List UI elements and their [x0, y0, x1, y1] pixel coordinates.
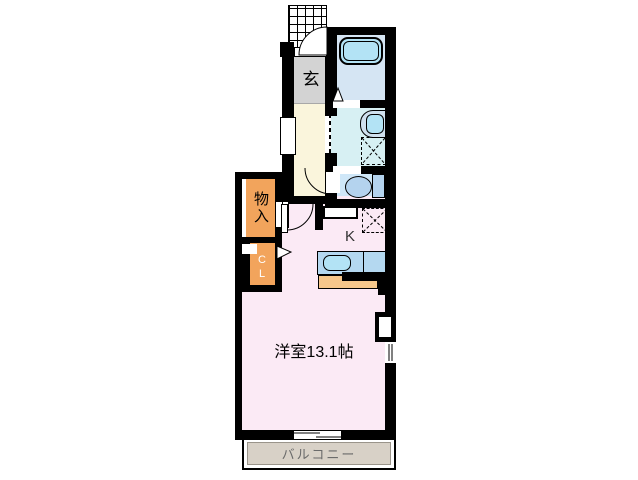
window-south	[293, 430, 342, 440]
wall-bath-left	[325, 35, 337, 107]
wall-closet-bottom	[242, 285, 282, 292]
hallway	[294, 103, 325, 196]
balcony-label: バルコニー	[247, 444, 391, 462]
genkan-step-line	[294, 103, 325, 104]
wall-east-upper	[385, 35, 396, 208]
bathroom-door-opening	[333, 100, 360, 108]
pipe-space-inner	[379, 317, 391, 337]
wall-kitchen-stub	[315, 196, 323, 230]
storage-label: 物入	[248, 182, 273, 234]
wall-bath-top	[325, 27, 396, 35]
kitchen-label: K	[340, 227, 360, 245]
kitchen-sink	[323, 255, 351, 271]
western-room-label: 洋室13.1帖	[242, 340, 386, 360]
counter-divider	[363, 252, 364, 274]
wall-counter-back-v	[378, 281, 390, 295]
toilet-door-opening	[326, 172, 340, 193]
genkan-label: 玄	[296, 64, 326, 90]
wall-hall-bottom	[285, 196, 330, 204]
closet-label: CL	[253, 253, 271, 283]
bathtub	[339, 37, 383, 65]
vanity-bowl	[366, 114, 384, 134]
wall-northwest-horizontal	[235, 172, 287, 179]
entry-door-leaf	[294, 47, 327, 57]
window-west	[280, 117, 296, 155]
washing-machine-space	[361, 137, 386, 165]
floorplan: 玄 物入 CL K 洋室13.1帖 バルコニー	[0, 0, 638, 480]
room-door-leaf	[281, 204, 288, 233]
wall-counter-back-h	[342, 272, 396, 281]
bathtub-inner-line	[343, 41, 379, 61]
window-east	[385, 342, 396, 363]
wall-west-outer	[235, 172, 242, 440]
toilet-bowl	[345, 176, 372, 198]
range-counter	[323, 206, 358, 219]
toilet-tank	[372, 174, 385, 198]
